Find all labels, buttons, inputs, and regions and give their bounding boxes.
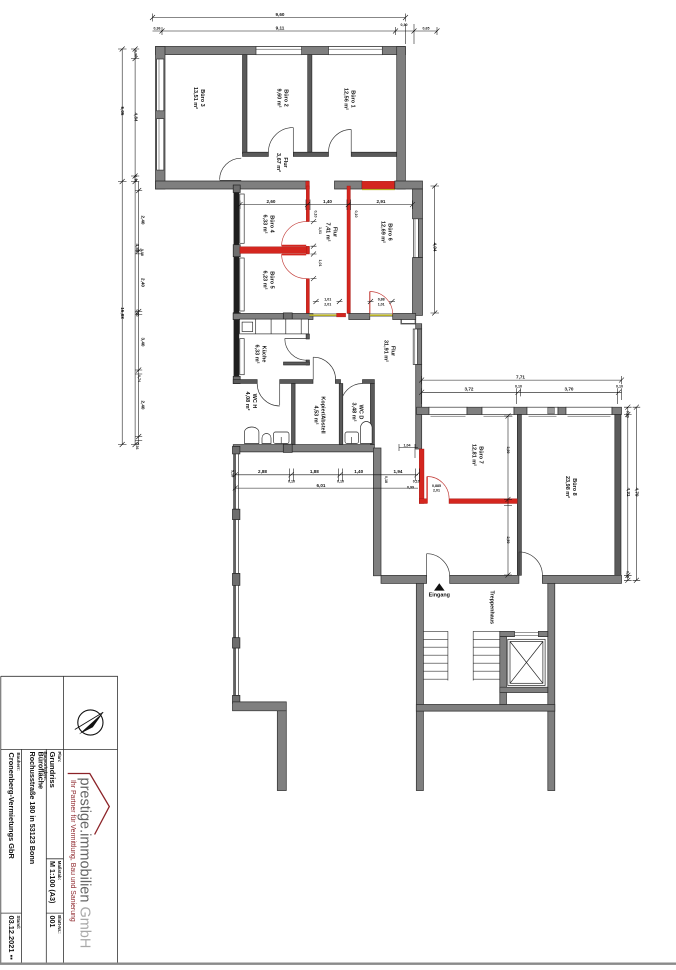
svg-text:0,10: 0,10 [314,211,318,218]
svg-text:0,18: 0,18 [384,476,388,483]
svg-text:31,91 m²: 31,91 m² [383,340,390,362]
svg-text:1,01: 1,01 [318,260,322,267]
svg-text:6,23 m²: 6,23 m² [262,271,269,290]
svg-text:12,69 m²: 12,69 m² [380,221,387,243]
svg-text:0,15: 0,15 [626,571,630,578]
svg-text:1,88: 1,88 [310,469,319,474]
svg-text:2,59: 2,59 [506,537,510,544]
svg-text:0,10: 0,10 [354,211,358,218]
svg-text:0,36: 0,36 [133,50,137,57]
svg-text:prestige.immobilien GmbH: prestige.immobilien GmbH [77,778,93,949]
svg-text:03.12.2021 ▪▪: 03.12.2021 ▪▪ [7,916,16,961]
svg-text:1,01: 1,01 [324,298,331,302]
svg-text:9,60: 9,60 [276,12,285,17]
svg-text:2,60: 2,60 [267,199,276,204]
svg-text:001: 001 [48,916,57,928]
svg-text:7,71: 7,71 [516,374,525,379]
svg-text:0,88: 0,88 [378,298,385,302]
svg-text:Flur: Flur [390,346,396,357]
svg-text:Büro 3: Büro 3 [199,89,205,106]
svg-text:M 1:100 (A3): M 1:100 (A3) [48,861,57,904]
svg-text:1,01: 1,01 [318,227,322,234]
svg-text:WC H: WC H [251,394,257,409]
svg-text:WC D: WC D [358,405,364,420]
svg-text:Ihr Partner für Vermittlung, B: Ihr Partner für Vermittlung, Bau und San… [69,780,76,922]
svg-text:9,11: 9,11 [276,25,285,30]
svg-text:1,94: 1,94 [394,469,403,474]
svg-text:1,40: 1,40 [354,469,363,474]
svg-text:Büro 4: Büro 4 [269,215,275,233]
svg-text:Kopier/Abstell: Kopier/Abstell [320,396,326,434]
svg-text:5,05: 5,05 [120,107,125,116]
svg-text:4,79: 4,79 [635,488,640,497]
svg-text:3,67 m²: 3,67 m² [275,153,282,172]
svg-text:2,40: 2,40 [141,216,146,225]
svg-text:Büro 1: Büro 1 [350,90,356,107]
svg-text:23,98 m²: 23,98 m² [564,476,571,498]
svg-text:Büro 2: Büro 2 [283,89,289,106]
svg-text:0,30: 0,30 [135,310,139,317]
svg-text:1,40: 1,40 [323,199,332,204]
svg-text:0,08: 0,08 [140,249,144,256]
svg-text:0,74: 0,74 [137,375,141,382]
svg-text:12,81 m²: 12,81 m² [471,444,478,466]
svg-text:3,89: 3,89 [506,447,510,454]
svg-text:2,91: 2,91 [377,199,386,204]
svg-text:0,10: 0,10 [337,479,344,483]
svg-text:4,53 m²: 4,53 m² [313,406,320,425]
svg-text:1,04: 1,04 [404,443,411,447]
svg-text:Grundriss: Grundriss [48,752,57,788]
svg-text:4,04: 4,04 [433,243,438,252]
svg-text:0,30: 0,30 [133,175,137,182]
svg-text:Küche: Küche [261,346,267,363]
svg-text:0,10: 0,10 [413,479,420,483]
svg-text:4,31: 4,31 [626,488,631,497]
svg-text:0,10: 0,10 [288,479,295,483]
svg-text:1,01: 1,01 [378,302,385,306]
svg-text:3,70: 3,70 [565,387,574,392]
svg-text:4,84: 4,84 [133,113,138,122]
svg-text:Treppenhaus: Treppenhaus [489,591,495,625]
svg-text:6,01: 6,01 [317,483,326,488]
svg-text:2,01: 2,01 [433,489,440,493]
svg-text:4,85: 4,85 [135,244,140,253]
svg-text:2,01: 2,01 [324,302,331,306]
svg-text:15,88: 15,88 [120,307,125,319]
svg-text:2,40: 2,40 [141,401,146,410]
svg-text:0,10: 0,10 [616,384,623,388]
svg-text:6,33 m²: 6,33 m² [254,345,261,364]
svg-text:Büro 6: Büro 6 [387,223,393,240]
svg-text:3,40: 3,40 [141,338,146,347]
svg-text:3,72: 3,72 [465,387,474,392]
svg-text:7,41 m²: 7,41 m² [325,223,332,242]
svg-text:4,08 m²: 4,08 m² [244,392,251,411]
svg-text:Cronenberg-Vermietungs GbR: Cronenberg-Vermietungs GbR [7,753,16,860]
svg-text:2,40: 2,40 [141,278,146,287]
svg-text:0,65: 0,65 [423,27,430,31]
svg-text:0,10: 0,10 [515,384,522,388]
svg-text:0,36: 0,36 [154,27,161,31]
svg-text:Flur: Flur [332,227,338,238]
svg-text:0,99: 0,99 [407,485,414,489]
svg-text:Rochusstraße 180 in 53123 Bonn: Rochusstraße 180 in 53123 Bonn [28,752,37,865]
svg-text:0,885: 0,885 [432,484,441,488]
svg-text:Büro 5: Büro 5 [269,271,275,288]
svg-text:9,60 m²: 9,60 m² [276,89,283,108]
svg-text:Büro 8: Büro 8 [571,478,577,495]
svg-text:0,36: 0,36 [135,443,139,450]
svg-text:Flur: Flur [282,157,288,168]
svg-text:Büro 7: Büro 7 [478,446,484,463]
svg-text:Eingang: Eingang [429,593,450,599]
svg-text:13,51 m²: 13,51 m² [192,87,199,109]
svg-text:3,48 m²: 3,48 m² [351,403,358,422]
svg-text:0,29: 0,29 [626,411,630,418]
svg-text:12,56 m²: 12,56 m² [343,88,350,110]
svg-text:2,88: 2,88 [258,469,267,474]
svg-text:0,30: 0,30 [401,23,408,27]
svg-text:6,33 m²: 6,33 m² [262,215,269,234]
svg-text:5,18: 5,18 [231,470,235,477]
